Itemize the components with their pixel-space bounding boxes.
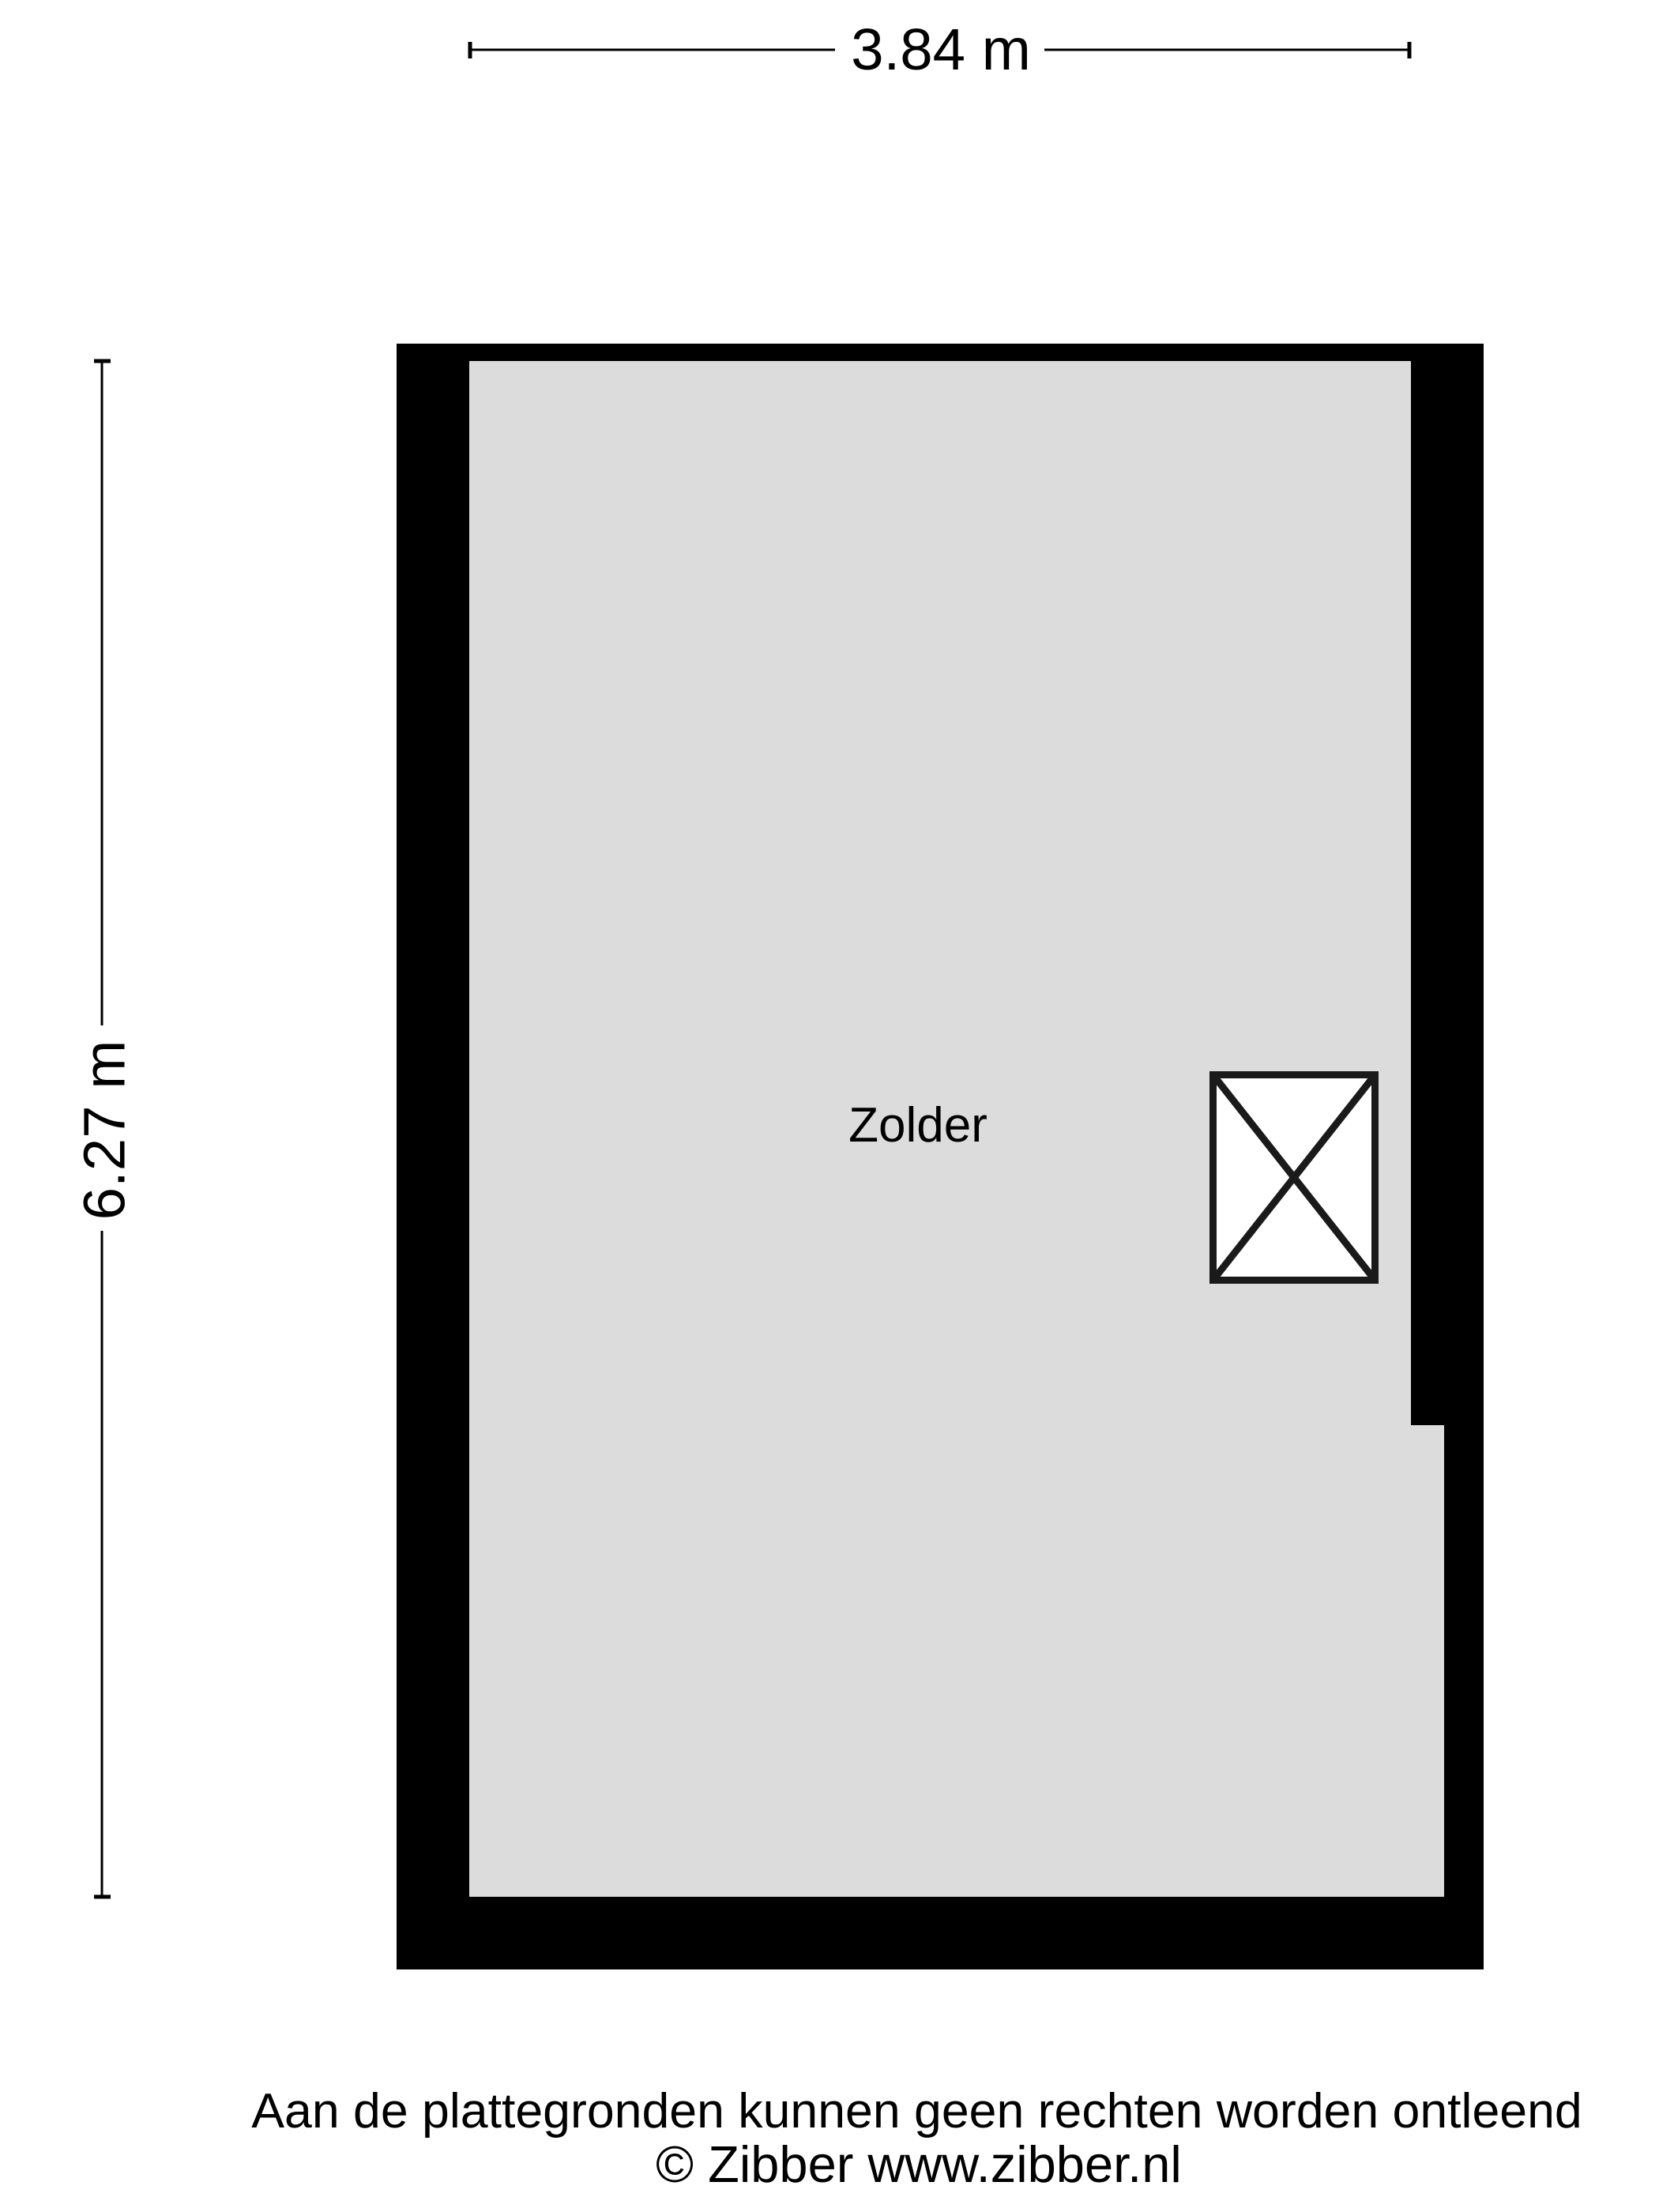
- svg-text:Aan de plattegronden kunnen ge: Aan de plattegronden kunnen geen rechten…: [251, 2083, 1582, 2139]
- svg-text:3.84 m: 3.84 m: [851, 17, 1031, 82]
- svg-text:6.27 m: 6.27 m: [72, 1040, 137, 1221]
- svg-text:Zolder: Zolder: [848, 1098, 987, 1153]
- svg-text:© Zibber www.zibber.nl: © Zibber www.zibber.nl: [656, 2135, 1182, 2193]
